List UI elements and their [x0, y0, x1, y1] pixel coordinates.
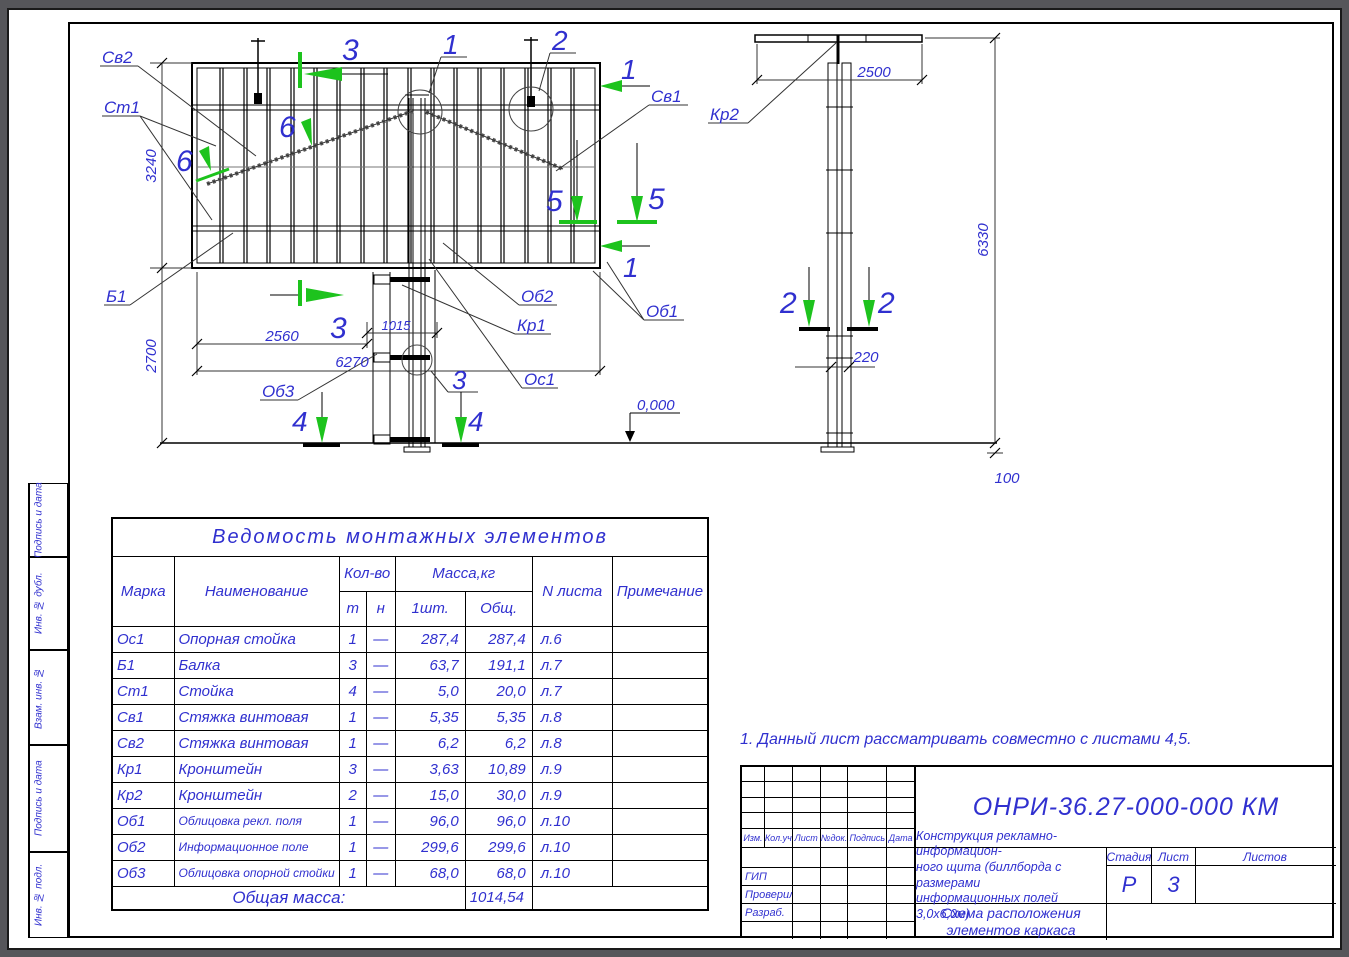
anchor-bolt-right	[524, 37, 538, 104]
dim-100: 100	[994, 470, 1020, 487]
label-ob2: Об2	[521, 287, 554, 306]
post-splices	[826, 107, 853, 433]
stage-label: Стадия	[1107, 848, 1152, 865]
dim-3240: 3240	[143, 149, 160, 183]
anchor-bolt-right-head	[527, 96, 535, 107]
rev-header-podpis: Подпись	[848, 829, 887, 847]
panel-outer-frame	[192, 63, 600, 268]
col-header-t: т	[339, 591, 366, 626]
section-4-stems	[322, 392, 461, 417]
col-header-note: Примечание	[612, 556, 708, 626]
rev-header-koluch: Кол.уч	[765, 829, 793, 847]
rev-header-data: Дата	[887, 829, 914, 847]
section-5-left-arrow	[571, 196, 583, 222]
revision-table: Изм. Кол.уч Лист №док. Подпись Дата ГИП …	[742, 767, 916, 936]
role-razrab: Разраб.	[742, 904, 793, 921]
detail-mark-2: 2	[551, 25, 568, 56]
section-3-bottom-bar	[298, 280, 302, 306]
rev-header-ndok: №док.	[821, 829, 849, 847]
section-5-left-bar	[559, 220, 597, 224]
label-b1: Б1	[106, 287, 127, 306]
section-label-6-right: 6	[279, 111, 296, 144]
section-2-left-bar	[799, 327, 830, 331]
label-sv2: Св2	[102, 48, 133, 67]
revision-header-row: Изм. Кол.уч Лист №док. Подпись Дата	[742, 829, 914, 848]
section-label-1-top: 1	[621, 54, 637, 85]
rev-header-izm: Изм.	[742, 829, 765, 847]
table-row: Об3Облицовка опорной стойки1—68,068,0л.1…	[112, 860, 708, 886]
table-row: Об1Облицовка рекл. поля1—96,096,0л.10	[112, 808, 708, 834]
table-row: Кр1Кронштейн3—3,6310,89л.9	[112, 756, 708, 782]
role-gip: ГИП	[742, 868, 793, 885]
section-6-bar	[196, 169, 229, 181]
tie-rod-right-line	[426, 112, 563, 169]
col-header-mark: Марка	[112, 556, 174, 626]
label-st1: Ст1	[104, 98, 140, 117]
col-header-mass: Масса,кг	[395, 556, 532, 591]
title-block: Изм. Кол.уч Лист №док. Подпись Дата ГИП …	[740, 765, 1334, 938]
table-title: Ведомость монтажных элементов	[112, 518, 708, 556]
section-6-right-arrow	[301, 118, 312, 146]
section-2-right-arrow	[863, 300, 875, 327]
dim-2700: 2700	[143, 339, 160, 374]
detail-mark-3: 3	[452, 365, 467, 395]
document-name: Конструкция рекламно-информацион- ного щ…	[916, 848, 1107, 904]
label-sv1: Св1	[651, 87, 682, 106]
total-mass-label: Общая масса:	[112, 886, 465, 910]
cad-sheet-canvas: { "colors": {"blue": "#3030cf", "green":…	[0, 0, 1349, 957]
sheets-label: Листов	[1196, 848, 1334, 865]
post-channel-right	[842, 63, 851, 447]
dim-1015: 1015	[382, 318, 412, 333]
sheet-name: Схема расположения элементов каркаса	[916, 904, 1107, 940]
level-mark	[630, 413, 680, 441]
section-2-right-bar	[847, 327, 878, 331]
stage-header-row: Стадия Лист Листов	[1107, 848, 1336, 866]
bracket-plate-top	[374, 275, 390, 284]
total-mass-value: 1014,54	[465, 886, 532, 910]
rev-header-list: Лист	[793, 829, 821, 847]
dim-6270: 6270	[335, 354, 369, 371]
table-row: Ос1Опорная стойка1—287,4287,4л.6	[112, 626, 708, 652]
section-5-right-bar	[617, 220, 657, 224]
section-label-5-left: 5	[546, 185, 563, 218]
dim-2560: 2560	[264, 328, 299, 345]
section-label-4-left: 4	[292, 406, 308, 437]
panel-studs	[220, 68, 574, 263]
table-row: Об2Информационное поле1—299,6299,6л.10	[112, 834, 708, 860]
section-4-right-arrow	[455, 417, 467, 443]
col-header-sheet: N листа	[532, 556, 612, 626]
section-3-bottom-arrow	[306, 288, 344, 302]
table-row: Св1Стяжка винтовая1—5,355,35л.8	[112, 704, 708, 730]
section-4-left-bar	[303, 443, 340, 447]
sheet-label: Лист	[1152, 848, 1196, 865]
stage-value-row: Р 3	[1107, 866, 1336, 904]
support-post	[405, 95, 429, 447]
dim-2500: 2500	[856, 64, 891, 81]
section-5-right-arrow	[631, 196, 643, 222]
section-2-left-arrow	[803, 300, 815, 327]
table-row: Ст1Стойка4—5,020,0л.7	[112, 678, 708, 704]
sheets-total	[1196, 866, 1334, 903]
leader-lines	[130, 43, 836, 400]
stage-value: Р	[1107, 866, 1152, 903]
support-post-base-plate	[404, 447, 430, 452]
section-4-left-arrow	[316, 417, 328, 443]
table-total-row: Общая масса: 1014,54	[112, 886, 708, 910]
assembly-elements-table: Ведомость монтажных элементов Марка Наим…	[111, 517, 709, 911]
detail-mark-1: 1	[443, 29, 459, 60]
section-4-right-bar	[442, 443, 479, 447]
table-row: Б1Балка3—63,7191,1л.7	[112, 652, 708, 678]
post-channel-left	[828, 63, 837, 447]
section-label-5-right: 5	[648, 183, 665, 216]
label-ob1: Об1	[646, 302, 678, 321]
post-base-plate-side	[821, 447, 854, 452]
col-header-name: Наименование	[174, 556, 339, 626]
col-header-qty: Кол-во	[339, 556, 395, 591]
table-row: Св2Стяжка винтовая1—6,26,2л.8	[112, 730, 708, 756]
section-label-1-bottom: 1	[623, 252, 639, 283]
label-os1: Ос1	[524, 370, 555, 389]
dim-6330: 6330	[975, 223, 992, 257]
section-3-top-bar	[298, 52, 302, 88]
label-ob3: Об3	[262, 382, 295, 401]
section-label-4-right: 4	[468, 406, 484, 437]
section-3-top-arrow	[304, 67, 342, 81]
section-mark-tails	[270, 74, 650, 295]
section-5-stems	[577, 140, 637, 196]
section-label-3-bottom: 3	[330, 312, 347, 345]
section-2-stems	[809, 267, 869, 300]
dim-220: 220	[852, 349, 879, 366]
sheet-note: 1. Данный лист рассматривать совместно с…	[740, 731, 1280, 749]
level-value: 0,000	[637, 397, 675, 414]
section-1-top-arrow	[600, 80, 622, 92]
section-label-2-right: 2	[877, 287, 895, 320]
col-header-n: н	[366, 591, 395, 626]
section-label-6-left: 6	[176, 145, 193, 178]
section-label-3-top: 3	[342, 34, 359, 67]
section-label-2-left: 2	[779, 287, 797, 320]
col-header-one: 1шт.	[395, 591, 465, 626]
label-kr1: Кр1	[517, 316, 546, 335]
table-row: Кр2Кронштейн2—15,030,0л.9	[112, 782, 708, 808]
label-kr2: Кр2	[710, 105, 739, 124]
role-proveril: Проверил	[742, 886, 793, 903]
section-1-bottom-arrow	[600, 240, 622, 252]
sheet-number: 3	[1152, 866, 1196, 903]
col-header-total: Общ.	[465, 591, 532, 626]
anchor-bolt-left-head	[254, 93, 262, 104]
level-mark-arrow	[625, 431, 635, 442]
